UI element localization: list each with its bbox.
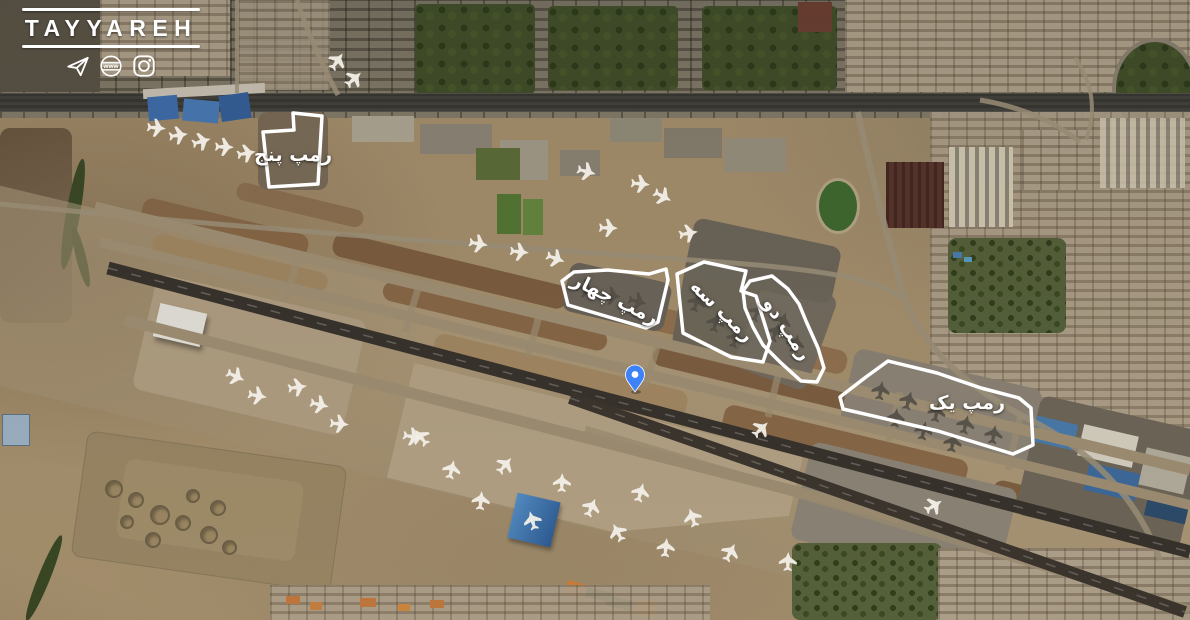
aircraft-icon: [599, 219, 619, 238]
aircraft-icon: [553, 473, 572, 493]
aircraft-icon: [575, 160, 598, 182]
aircraft-icon: [223, 364, 248, 388]
aircraft-icon: [579, 495, 603, 520]
aircraft-icon: [681, 506, 704, 530]
road: [980, 100, 1080, 142]
aircraft-icon: [678, 223, 700, 244]
pin-icon: [626, 365, 645, 392]
aircraft-icon: [190, 130, 213, 153]
instagram-icon[interactable]: [131, 53, 157, 79]
website-icon[interactable]: www: [98, 53, 124, 79]
aircraft-icon: [718, 540, 743, 565]
aircraft-icon: [656, 537, 676, 558]
ramp-five-label[interactable]: رمپ پنج: [254, 144, 332, 166]
aircraft-icon: [308, 394, 331, 416]
aircraft-icon: [605, 520, 630, 545]
aircraft-icon: [329, 414, 349, 434]
aircraft-icon: [441, 458, 463, 481]
aircraft-icon: [521, 509, 544, 532]
aircraft-icon: [629, 481, 652, 504]
aircraft-icon: [492, 452, 518, 478]
aircraft-icon: [168, 125, 189, 145]
aircraft-icon: [247, 385, 269, 406]
aircraft-icon: [650, 184, 675, 209]
aircraft-icon: [341, 66, 367, 92]
aircraft-icon: [287, 377, 308, 397]
brand-title: TAYYAREH: [22, 16, 200, 41]
watermark: TAYYAREH www: [22, 8, 200, 79]
aircraft-icon: [471, 490, 491, 511]
aircraft-icon: [215, 138, 235, 157]
road: [297, 0, 338, 95]
satellite-map: رمپ پنج رمپ چهار رمپ سه رمپ دو رمپ یک TA…: [0, 0, 1190, 620]
road: [858, 112, 905, 300]
aircraft-icon: [779, 552, 798, 572]
www-label: www: [102, 63, 119, 70]
telegram-icon[interactable]: [65, 53, 91, 79]
location-pin[interactable]: [626, 365, 645, 394]
aircraft-icon: [921, 493, 947, 518]
map-overlay: [0, 0, 1190, 620]
aircraft-icon: [630, 174, 650, 194]
ramp-one-label[interactable]: رمپ یک: [929, 392, 1005, 414]
brand-rule-top: [22, 8, 200, 11]
road: [1075, 58, 1092, 140]
social-icons: www: [22, 53, 200, 79]
brand-rule-bottom: [22, 45, 200, 48]
annotations-layer: [263, 113, 1033, 454]
aircraft-icon: [146, 118, 166, 138]
